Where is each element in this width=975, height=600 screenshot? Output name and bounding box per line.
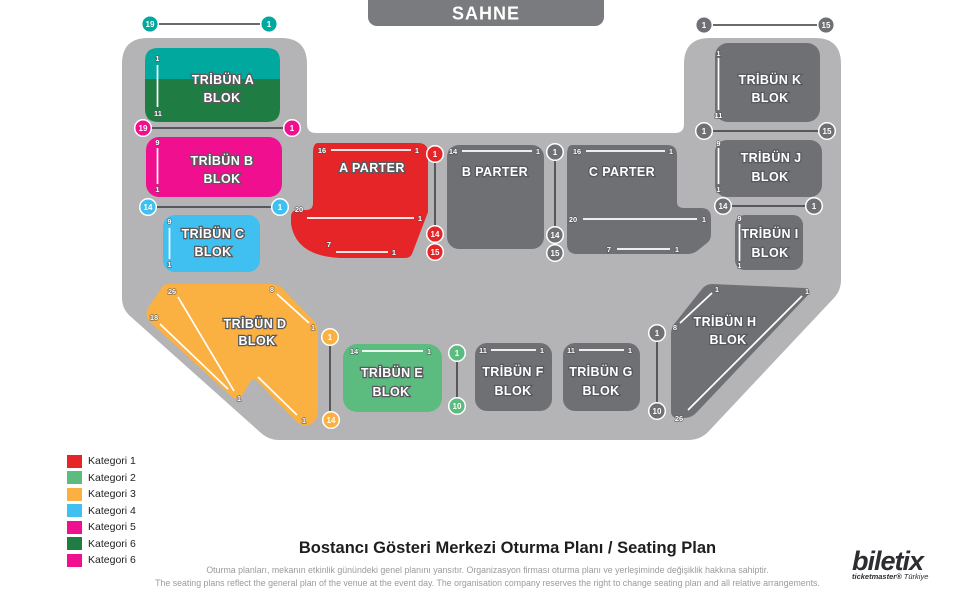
- label-tribun-a-1: TRİBÜN A: [192, 72, 254, 87]
- legend-label: Kategori 2: [88, 472, 136, 484]
- badge-apr-15: 15: [431, 248, 440, 257]
- row-e-start: 14: [350, 347, 359, 356]
- block-tribun-h[interactable]: TRİBÜN H BLOK 1 8 1 26: [671, 284, 809, 423]
- badge-bc-right: 1: [278, 203, 283, 212]
- row-a-top: 1: [155, 54, 159, 63]
- row-cparter-bot-end: 1: [675, 245, 679, 254]
- block-tribun-e[interactable]: TRİBÜN E BLOK 14 1: [343, 344, 442, 412]
- badge-ab-right: 1: [290, 124, 295, 133]
- legend-label: Kategori 4: [88, 505, 136, 517]
- badge-bpr-15: 15: [551, 249, 560, 258]
- row-j-bottom: 1: [716, 185, 720, 194]
- row-bparter-end: 1: [536, 147, 540, 156]
- block-tribun-k[interactable]: TRİBÜN K BLOK 1 11: [715, 43, 820, 122]
- row-d-outer-start: 26: [168, 287, 176, 296]
- disclaimer-english: The seating plans reflect the general pl…: [60, 578, 915, 588]
- row-k-bottom: 11: [715, 111, 723, 120]
- row-aparter-mid-start: 20: [295, 205, 303, 214]
- label-tribun-d-2: BLOK: [238, 334, 275, 348]
- row-g-start: 11: [567, 346, 575, 355]
- legend-swatch-kategori-3: [67, 488, 82, 501]
- legend-label: Kategori 1: [88, 455, 136, 467]
- legend-label: Kategori 5: [88, 521, 136, 533]
- row-i-top: 9: [737, 214, 741, 223]
- badge-gh-bottom: 10: [653, 407, 662, 416]
- legend-item: Kategori 4: [67, 503, 136, 520]
- badges-a-top: 19 1: [142, 16, 278, 33]
- legend-item: Kategori 2: [67, 470, 136, 487]
- legend-item: Kategori 5: [67, 519, 136, 536]
- label-tribun-b-2: BLOK: [203, 172, 240, 186]
- row-g-end: 1: [628, 346, 632, 355]
- stage-banner: SAHNE: [368, 0, 604, 26]
- row-e-end: 1: [427, 347, 431, 356]
- row-cparter-mid-start: 20: [569, 215, 577, 224]
- row-cparter-top-start: 16: [573, 147, 581, 156]
- badge-bc-left: 14: [144, 203, 153, 212]
- label-tribun-d-1: TRİBÜN D: [224, 316, 287, 331]
- legend-swatch-kategori-6: [67, 537, 82, 550]
- label-tribun-h-1: TRİBÜN H: [694, 314, 757, 329]
- disclaimer-turkish: Oturma planları, mekanın etkinlik gününd…: [60, 565, 915, 575]
- label-tribun-b-1: TRİBÜN B: [191, 153, 254, 168]
- row-b-bottom: 1: [155, 185, 159, 194]
- row-d-inner-start: 18: [150, 313, 158, 322]
- block-tribun-j[interactable]: TRİBÜN J BLOK 9 1: [715, 139, 822, 197]
- badge-kj-left: 1: [702, 127, 707, 136]
- biletix-wordmark: biletix: [852, 548, 967, 574]
- block-tribun-c[interactable]: TRİBÜN C BLOK 9 1: [163, 215, 260, 272]
- label-tribun-k-2: BLOK: [751, 91, 788, 105]
- badge-apr-1: 1: [433, 150, 438, 159]
- label-tribun-j-2: BLOK: [751, 170, 788, 184]
- badge-kj-right: 15: [823, 127, 832, 136]
- label-tribun-f-2: BLOK: [494, 384, 531, 398]
- badge-gh-top: 1: [655, 329, 660, 338]
- block-tribun-f[interactable]: TRİBÜN F BLOK 11 1: [475, 343, 552, 411]
- label-tribun-a-2: BLOK: [203, 91, 240, 105]
- label-tribun-h-2: BLOK: [709, 333, 746, 347]
- legend-swatch-kategori-4: [67, 504, 82, 517]
- label-tribun-g-2: BLOK: [582, 384, 619, 398]
- block-tribun-i[interactable]: TRİBÜN I BLOK 9 1: [735, 214, 803, 270]
- block-b-parter[interactable]: B PARTER 14 1: [447, 145, 544, 249]
- label-tribun-e-1: TRİBÜN E: [361, 365, 423, 380]
- row-f-end: 1: [540, 346, 544, 355]
- legend-label: Kategori 3: [88, 488, 136, 500]
- row-k-top: 1: [716, 49, 720, 58]
- label-tribun-i-2: BLOK: [751, 246, 788, 260]
- row-d-right-start: 8: [270, 285, 274, 294]
- badge-bpr-1: 1: [553, 148, 558, 157]
- badge-a-top-right: 1: [267, 20, 272, 29]
- row-cparter-bot-start: 7: [607, 245, 611, 254]
- row-aparter-top-start: 16: [318, 146, 326, 155]
- badge-ji-left: 14: [719, 202, 728, 211]
- label-tribun-i-1: TRİBÜN I: [741, 226, 798, 241]
- label-tribun-c-1: TRİBÜN C: [182, 226, 245, 241]
- seating-map: SAHNE TRİBÜN A BLOK 1 11 TRİBÜN B BLOK 9…: [0, 0, 975, 460]
- badge-er-top: 1: [455, 349, 460, 358]
- label-b-parter: B PARTER: [462, 165, 528, 179]
- badge-ji-right: 1: [812, 202, 817, 211]
- row-f-start: 11: [479, 346, 487, 355]
- label-tribun-c-2: BLOK: [194, 245, 231, 259]
- badge-ktop-right: 15: [822, 21, 831, 30]
- label-tribun-k-1: TRİBÜN K: [739, 72, 802, 87]
- row-aparter-bot-end: 1: [392, 248, 396, 257]
- stage-label: SAHNE: [452, 4, 520, 24]
- ticketmaster-tagline: ticketmaster® Türkiye: [852, 572, 967, 581]
- seating-plan-page: SAHNE TRİBÜN A BLOK 1 11 TRİBÜN B BLOK 9…: [0, 0, 975, 600]
- badge-ktop-left: 1: [702, 21, 707, 30]
- row-h-short-end: 8: [673, 323, 677, 332]
- row-h-long-start: 1: [805, 287, 809, 296]
- row-b-top: 9: [155, 138, 159, 147]
- badges-k-top: 1 15: [696, 17, 835, 34]
- row-j-top: 9: [716, 139, 720, 148]
- biletix-logo[interactable]: biletix ticketmaster® Türkiye: [852, 548, 967, 581]
- block-tribun-b[interactable]: TRİBÜN B BLOK 9 1: [146, 137, 282, 197]
- row-cparter-mid-end: 1: [702, 215, 706, 224]
- row-aparter-top-end: 1: [415, 146, 419, 155]
- label-tribun-f-1: TRİBÜN F: [482, 364, 544, 379]
- row-h-short-start: 1: [715, 285, 719, 294]
- row-bparter-start: 14: [449, 147, 458, 156]
- badge-apr-14: 14: [431, 230, 440, 239]
- row-a-bottom: 11: [154, 109, 162, 118]
- row-d-outer-end: 1: [237, 394, 241, 403]
- row-i-bottom: 1: [737, 261, 741, 270]
- row-h-long-end: 26: [675, 414, 683, 423]
- row-d-long-end: 1: [302, 416, 306, 425]
- page-title: Bostancı Gösteri Merkezi Oturma Planı / …: [100, 539, 915, 558]
- label-a-parter: A PARTER: [339, 161, 405, 175]
- legend-item: Kategori 1: [67, 453, 136, 470]
- badge-bpr-14: 14: [551, 231, 560, 240]
- legend-swatch-kategori-5: [67, 521, 82, 534]
- row-d-right-end: 1: [311, 323, 315, 332]
- label-tribun-j-1: TRİBÜN J: [741, 150, 802, 165]
- row-cparter-top-end: 1: [669, 147, 673, 156]
- label-tribun-g-1: TRİBÜN G: [569, 364, 633, 379]
- legend-swatch-kategori-1: [67, 455, 82, 468]
- row-aparter-mid-end: 1: [418, 214, 422, 223]
- badge-ab-left: 19: [139, 124, 148, 133]
- badge-a-top-left: 19: [146, 20, 155, 29]
- row-c-top: 9: [167, 217, 171, 226]
- badge-dr-bottom: 14: [327, 416, 336, 425]
- legend-item: Kategori 3: [67, 486, 136, 503]
- label-tribun-e-2: BLOK: [372, 385, 409, 399]
- block-tribun-g[interactable]: TRİBÜN G BLOK 11 1: [563, 343, 640, 411]
- badge-er-bottom: 10: [453, 402, 462, 411]
- row-aparter-bot-start: 7: [327, 240, 331, 249]
- legend-swatch-kategori-2: [67, 471, 82, 484]
- badge-dr-top: 1: [328, 333, 333, 342]
- row-c-bottom: 1: [167, 260, 171, 269]
- block-tribun-a[interactable]: TRİBÜN A BLOK 1 11: [145, 48, 280, 122]
- label-c-parter: C PARTER: [589, 165, 655, 179]
